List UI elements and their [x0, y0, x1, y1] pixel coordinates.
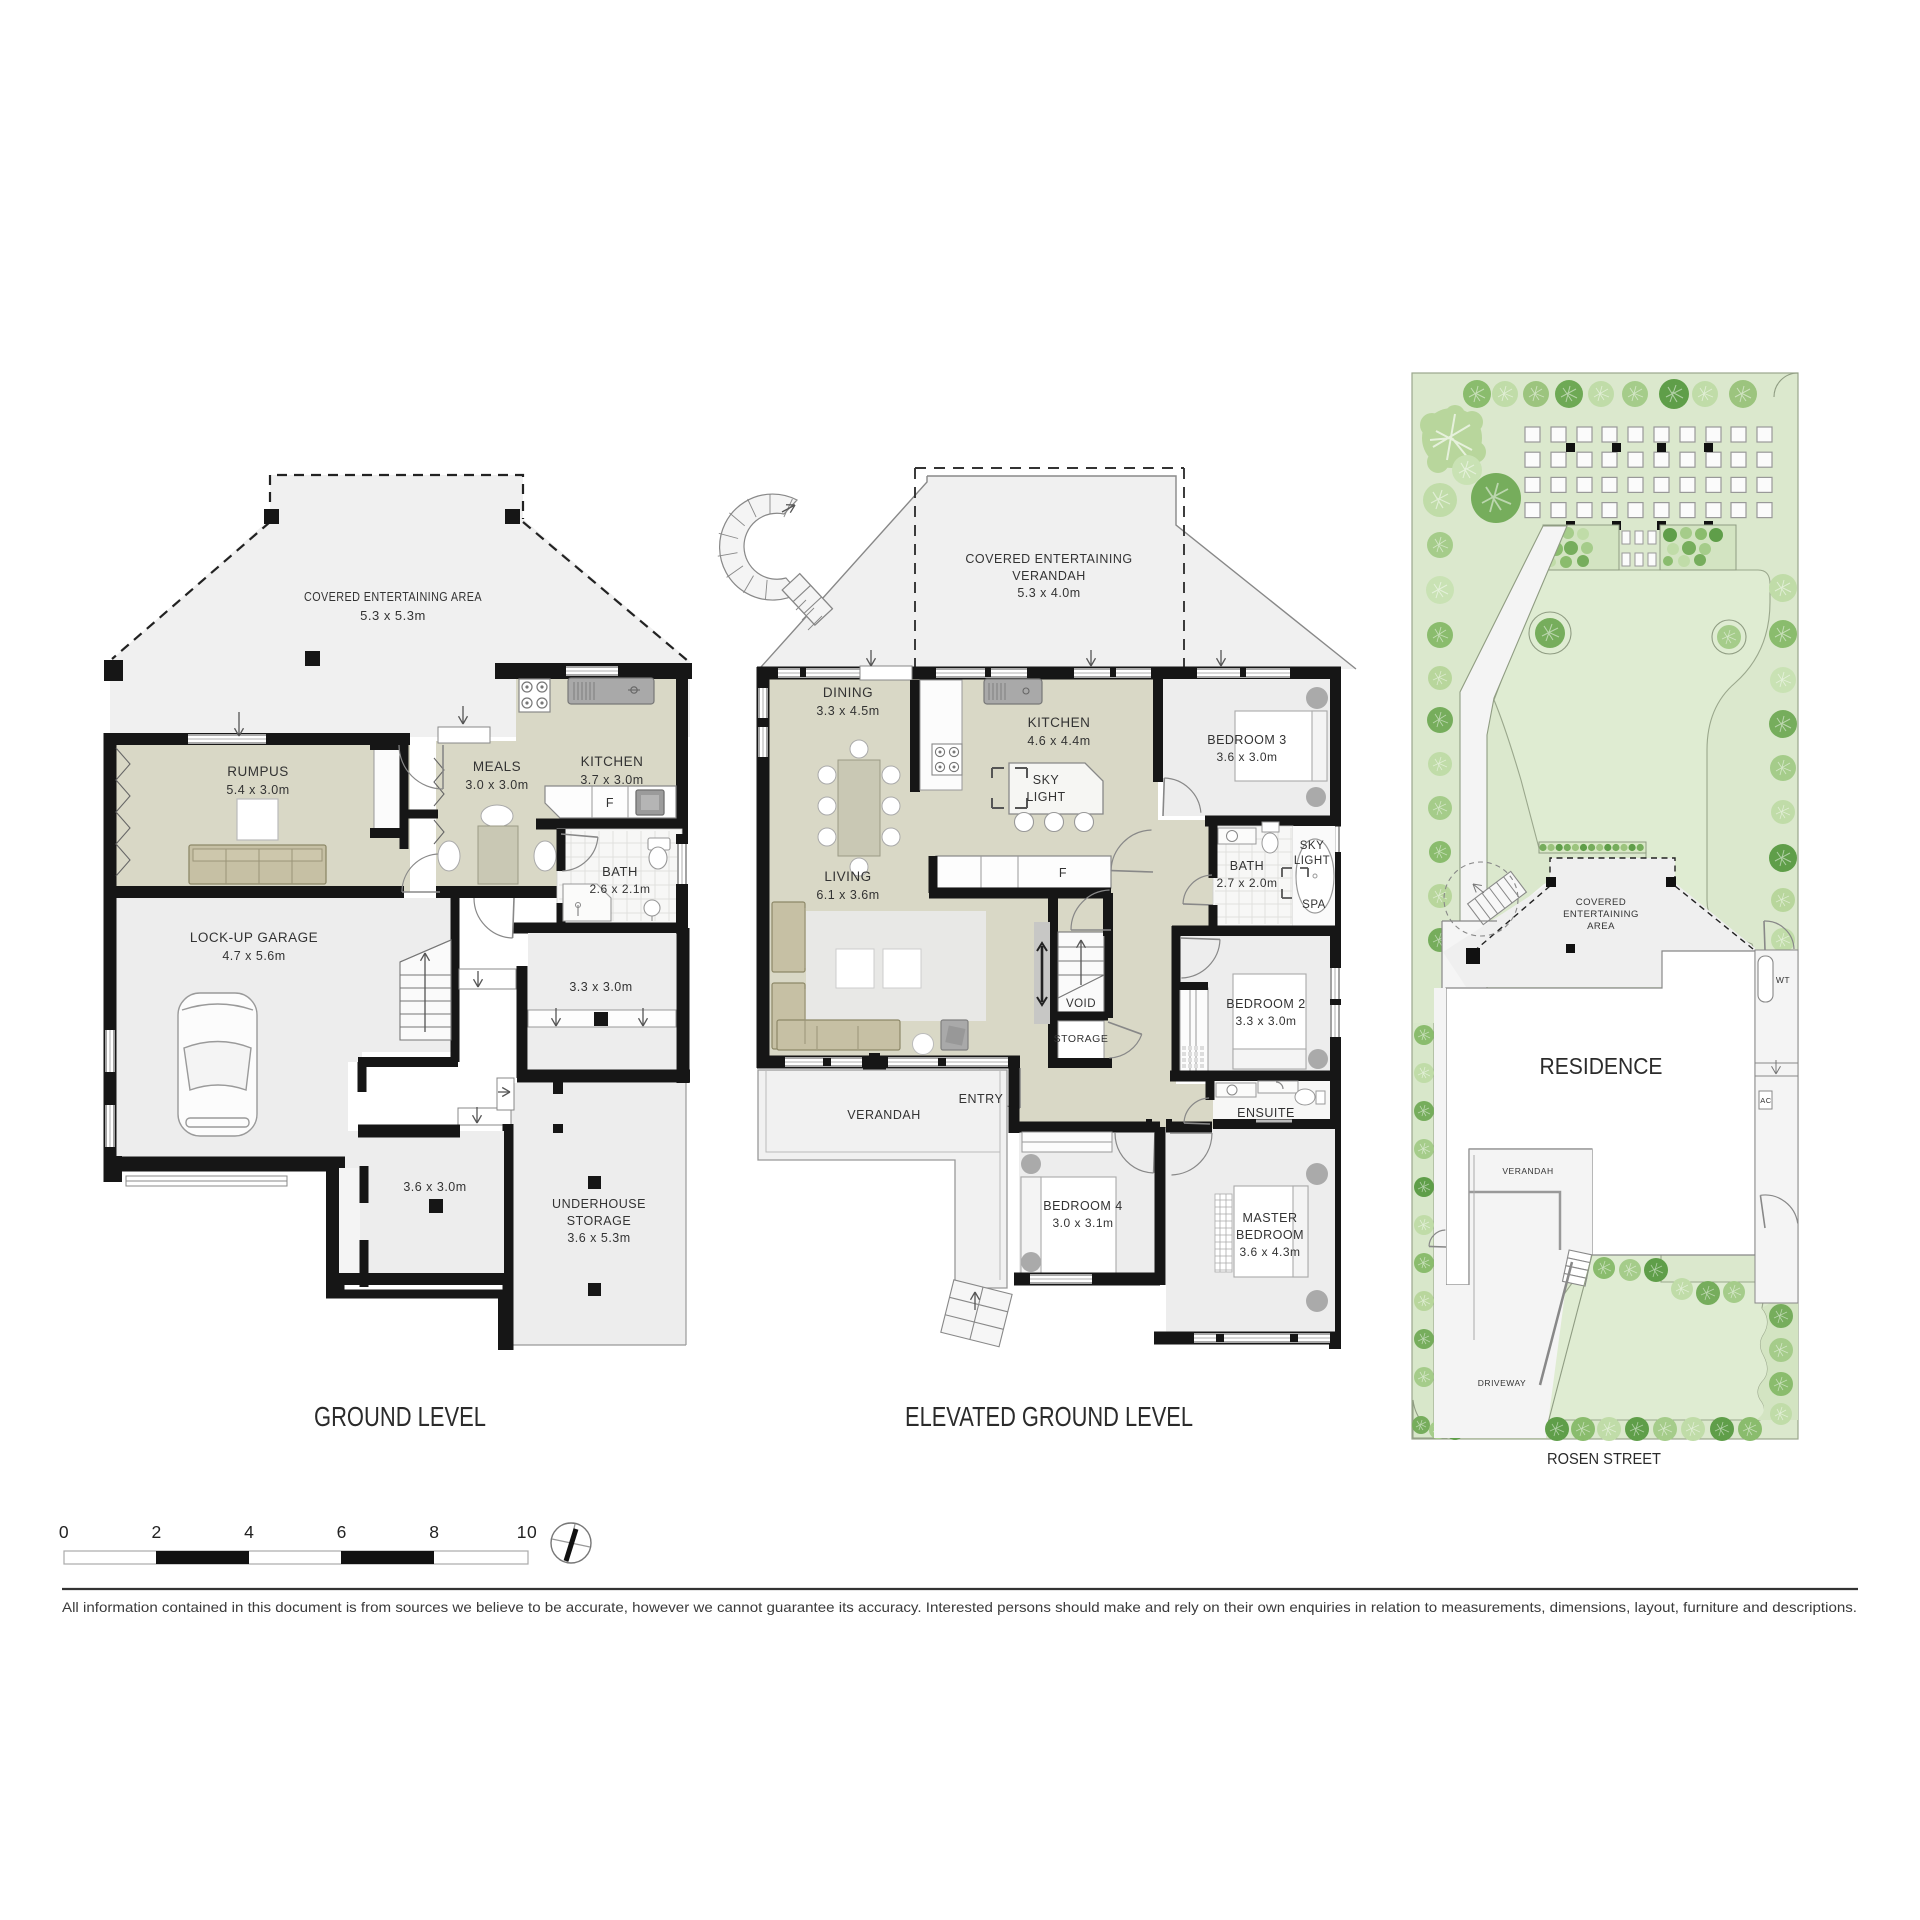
svg-text:5.3 x 5.3m: 5.3 x 5.3m [360, 608, 426, 623]
svg-text:BEDROOM: BEDROOM [1236, 1228, 1304, 1242]
svg-text:DRIVEWAY: DRIVEWAY [1478, 1378, 1526, 1388]
svg-text:MASTER: MASTER [1242, 1211, 1297, 1225]
svg-text:VERANDAH: VERANDAH [1502, 1166, 1553, 1176]
svg-text:LIGHT: LIGHT [1294, 855, 1330, 867]
svg-text:3.6 x 5.3m: 3.6 x 5.3m [567, 1231, 630, 1245]
svg-text:ENTRY: ENTRY [959, 1092, 1004, 1106]
svg-text:UNDERHOUSE: UNDERHOUSE [552, 1197, 646, 1211]
svg-text:3.0 x 3.0m: 3.0 x 3.0m [465, 778, 528, 792]
svg-text:GROUND LEVEL: GROUND LEVEL [314, 1401, 486, 1432]
svg-text:4.6 x 4.4m: 4.6 x 4.4m [1027, 734, 1090, 748]
svg-text:4: 4 [244, 1522, 254, 1542]
svg-text:6: 6 [337, 1522, 347, 1542]
svg-text:KITCHEN: KITCHEN [581, 754, 644, 769]
svg-text:3.3 x 4.5m: 3.3 x 4.5m [816, 704, 879, 718]
svg-text:AREA: AREA [1587, 921, 1615, 932]
svg-text:SPA: SPA [1302, 899, 1326, 911]
svg-text:3.3 x 3.0m: 3.3 x 3.0m [569, 980, 632, 994]
svg-text:WT: WT [1776, 975, 1790, 985]
svg-text:VOID: VOID [1066, 998, 1096, 1010]
svg-text:LOCK-UP GARAGE: LOCK-UP GARAGE [190, 930, 318, 945]
svg-text:2: 2 [151, 1522, 161, 1542]
svg-text:STORAGE: STORAGE [1054, 1033, 1109, 1045]
svg-text:SKY: SKY [1300, 840, 1325, 852]
svg-text:VERANDAH: VERANDAH [847, 1108, 920, 1122]
svg-text:6.1 x 3.6m: 6.1 x 3.6m [816, 888, 879, 902]
svg-text:RUMPUS: RUMPUS [227, 764, 289, 779]
svg-text:2.6 x 2.1m: 2.6 x 2.1m [589, 882, 650, 896]
svg-text:COVERED ENTERTAINING AREA: COVERED ENTERTAINING AREA [304, 589, 482, 604]
svg-text:5.3 x 4.0m: 5.3 x 4.0m [1017, 586, 1080, 600]
svg-text:BATH: BATH [1230, 859, 1264, 873]
svg-text:MEALS: MEALS [473, 759, 521, 774]
svg-text:COVERED: COVERED [1576, 897, 1626, 908]
svg-text:ENTERTAINING: ENTERTAINING [1563, 909, 1639, 920]
svg-text:KITCHEN: KITCHEN [1028, 715, 1091, 730]
svg-text:BEDROOM 3: BEDROOM 3 [1207, 733, 1287, 747]
svg-text:8: 8 [429, 1522, 439, 1542]
svg-text:COVERED ENTERTAINING: COVERED ENTERTAINING [965, 552, 1132, 566]
svg-text:F: F [1059, 866, 1067, 880]
svg-text:ROSEN STREET: ROSEN STREET [1547, 1451, 1661, 1468]
svg-text:BATH: BATH [602, 864, 638, 879]
svg-text:All information contained in t: All information contained in this docume… [62, 1599, 1857, 1615]
svg-text:3.6 x 3.0m: 3.6 x 3.0m [1216, 750, 1277, 764]
svg-text:ELEVATED GROUND LEVEL: ELEVATED GROUND LEVEL [905, 1401, 1193, 1432]
svg-text:10: 10 [517, 1522, 537, 1542]
svg-text:AC: AC [1760, 1096, 1772, 1105]
svg-text:0: 0 [59, 1522, 69, 1542]
svg-text:3.0 x 3.1m: 3.0 x 3.1m [1052, 1216, 1113, 1230]
svg-text:3.6 x 3.0m: 3.6 x 3.0m [403, 1180, 466, 1194]
svg-text:5.4 x 3.0m: 5.4 x 3.0m [226, 783, 289, 797]
svg-text:BEDROOM 2: BEDROOM 2 [1226, 997, 1306, 1011]
svg-text:SKY: SKY [1033, 773, 1060, 787]
svg-text:STORAGE: STORAGE [567, 1214, 631, 1228]
svg-text:2.7 x 2.0m: 2.7 x 2.0m [1216, 876, 1277, 890]
svg-text:4.7 x 5.6m: 4.7 x 5.6m [222, 949, 285, 963]
svg-text:3.6 x 4.3m: 3.6 x 4.3m [1239, 1245, 1300, 1259]
svg-text:F: F [606, 796, 614, 810]
svg-text:RESIDENCE: RESIDENCE [1540, 1053, 1663, 1079]
svg-text:3.3 x 3.0m: 3.3 x 3.0m [1235, 1014, 1296, 1028]
svg-text:ENSUITE: ENSUITE [1237, 1106, 1295, 1120]
svg-text:VERANDAH: VERANDAH [1012, 569, 1085, 583]
svg-text:LIGHT: LIGHT [1026, 790, 1065, 804]
svg-text:LIVING: LIVING [824, 869, 871, 884]
svg-text:DINING: DINING [823, 685, 873, 700]
svg-text:BEDROOM 4: BEDROOM 4 [1043, 1199, 1123, 1213]
svg-text:3.7 x 3.0m: 3.7 x 3.0m [580, 773, 643, 787]
